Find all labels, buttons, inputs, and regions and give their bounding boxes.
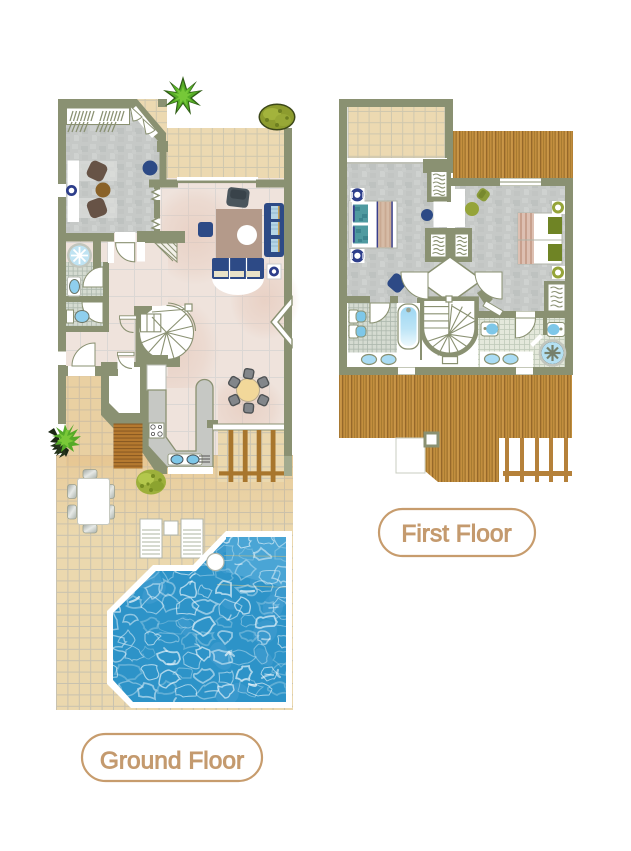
svg-text:Ground Floor: Ground Floor xyxy=(100,748,244,775)
svg-text:First Floor: First Floor xyxy=(401,521,511,548)
